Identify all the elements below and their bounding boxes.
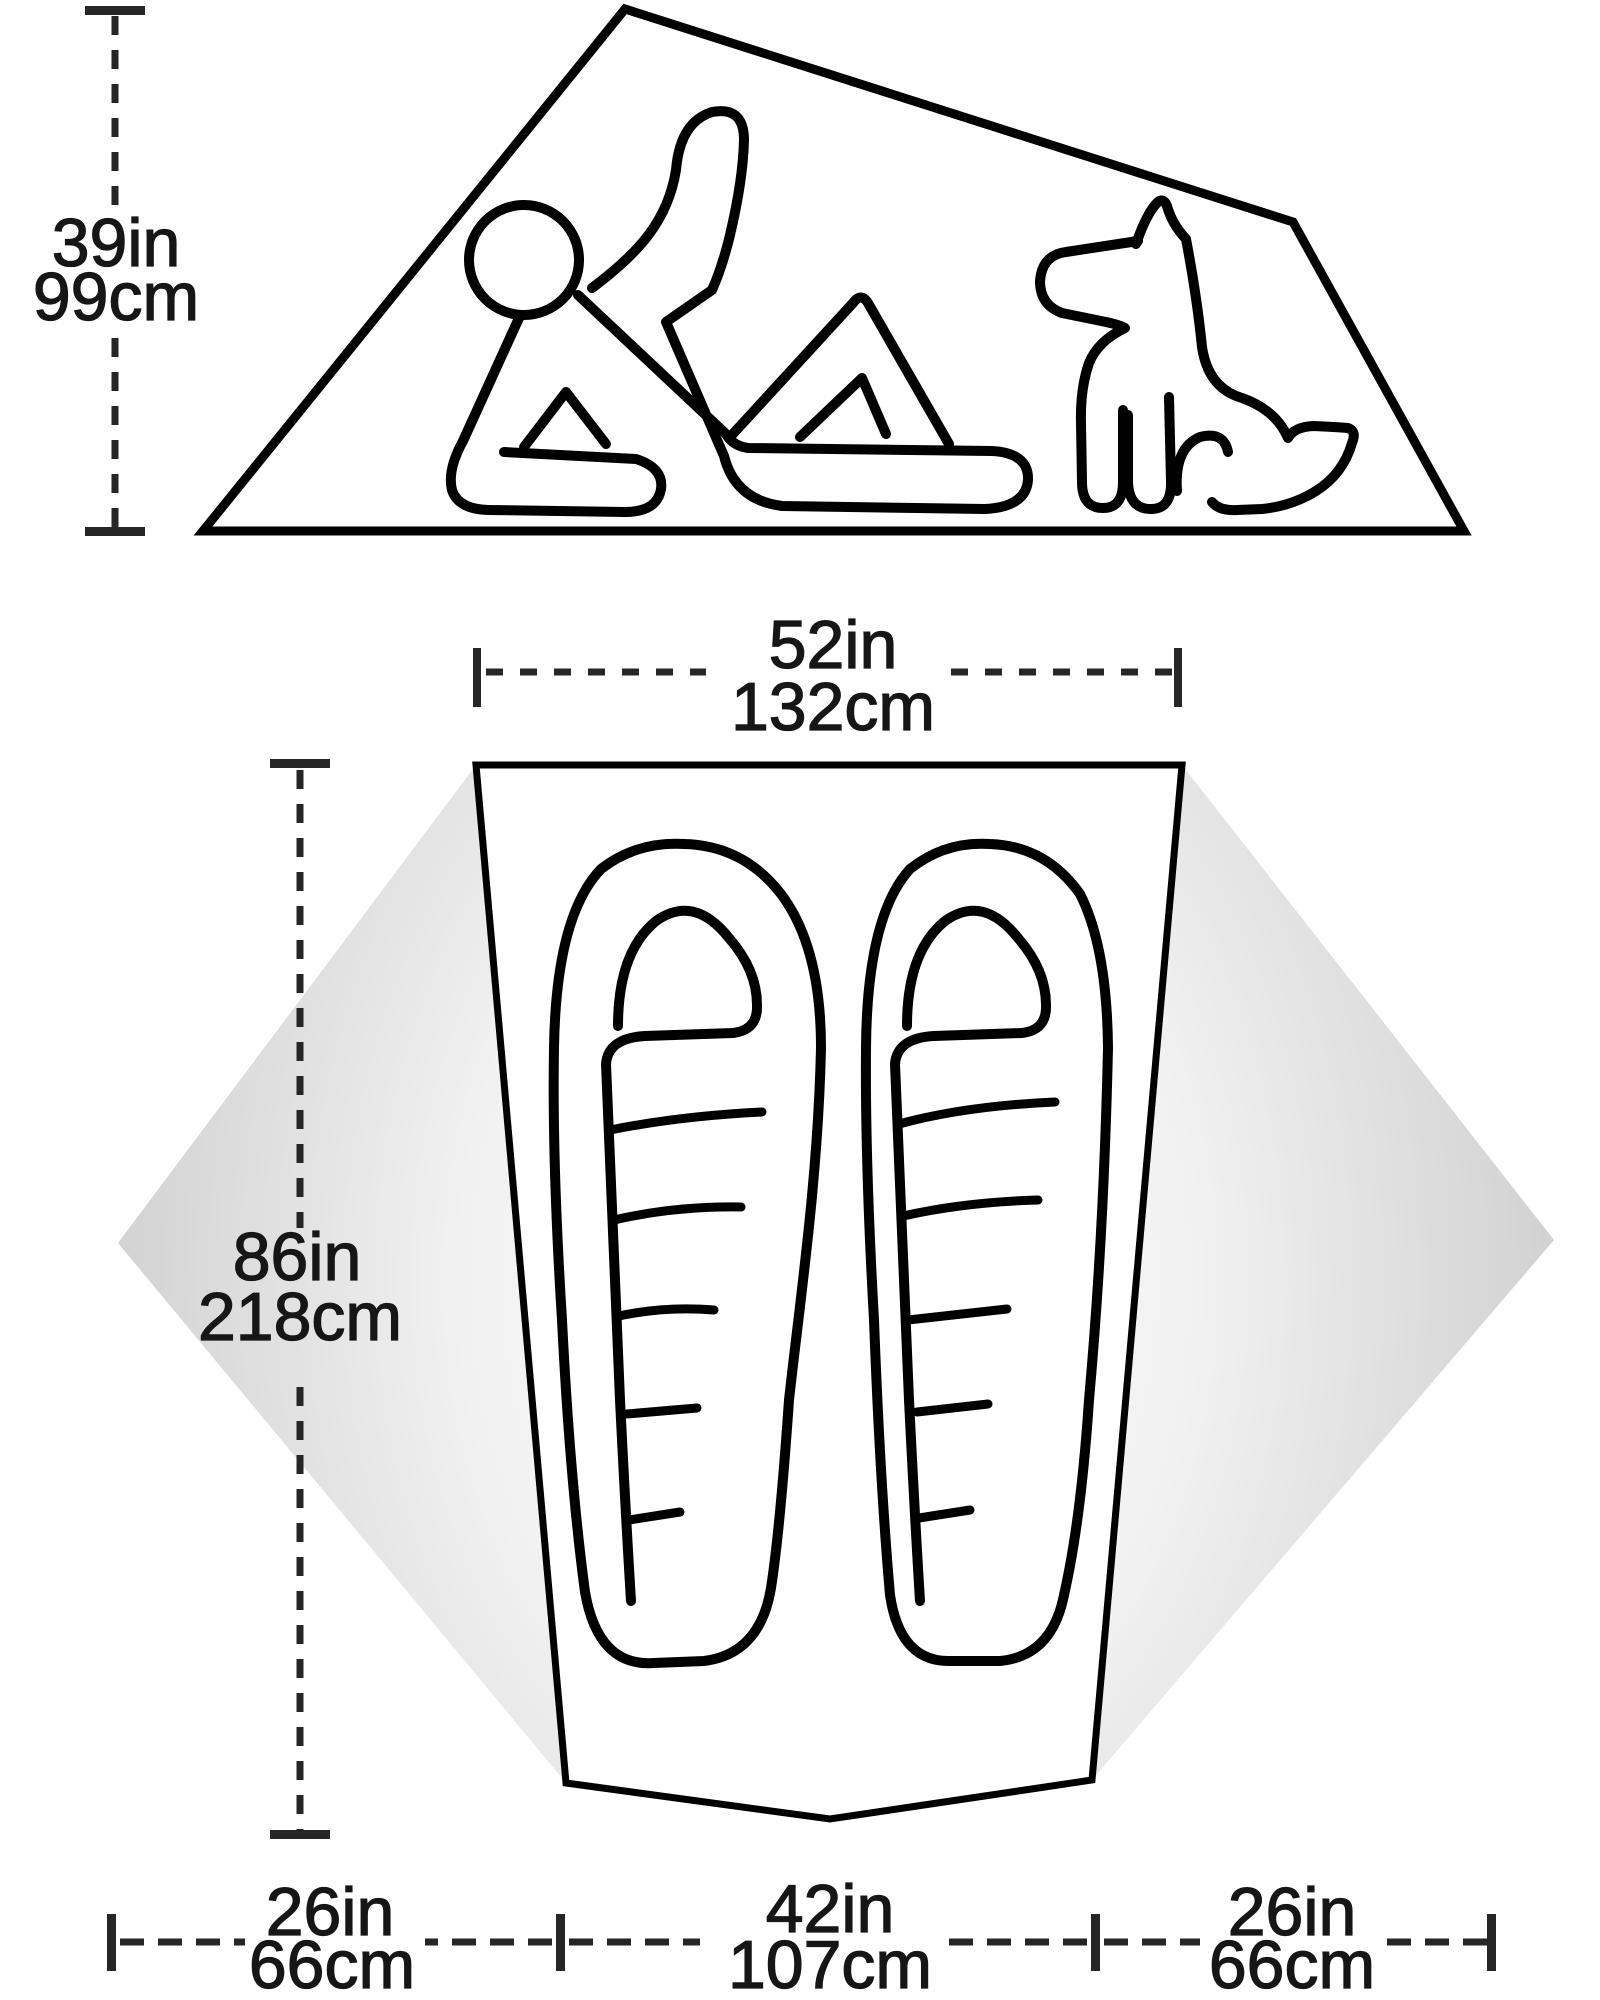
svg-text:132cm: 132cm — [731, 669, 935, 745]
svg-text:66cm: 66cm — [1209, 1927, 1375, 2000]
svg-text:66cm: 66cm — [249, 1927, 415, 2000]
svg-text:107cm: 107cm — [728, 1927, 932, 2000]
svg-text:99cm: 99cm — [33, 259, 199, 335]
svg-text:218cm: 218cm — [198, 1279, 402, 1355]
